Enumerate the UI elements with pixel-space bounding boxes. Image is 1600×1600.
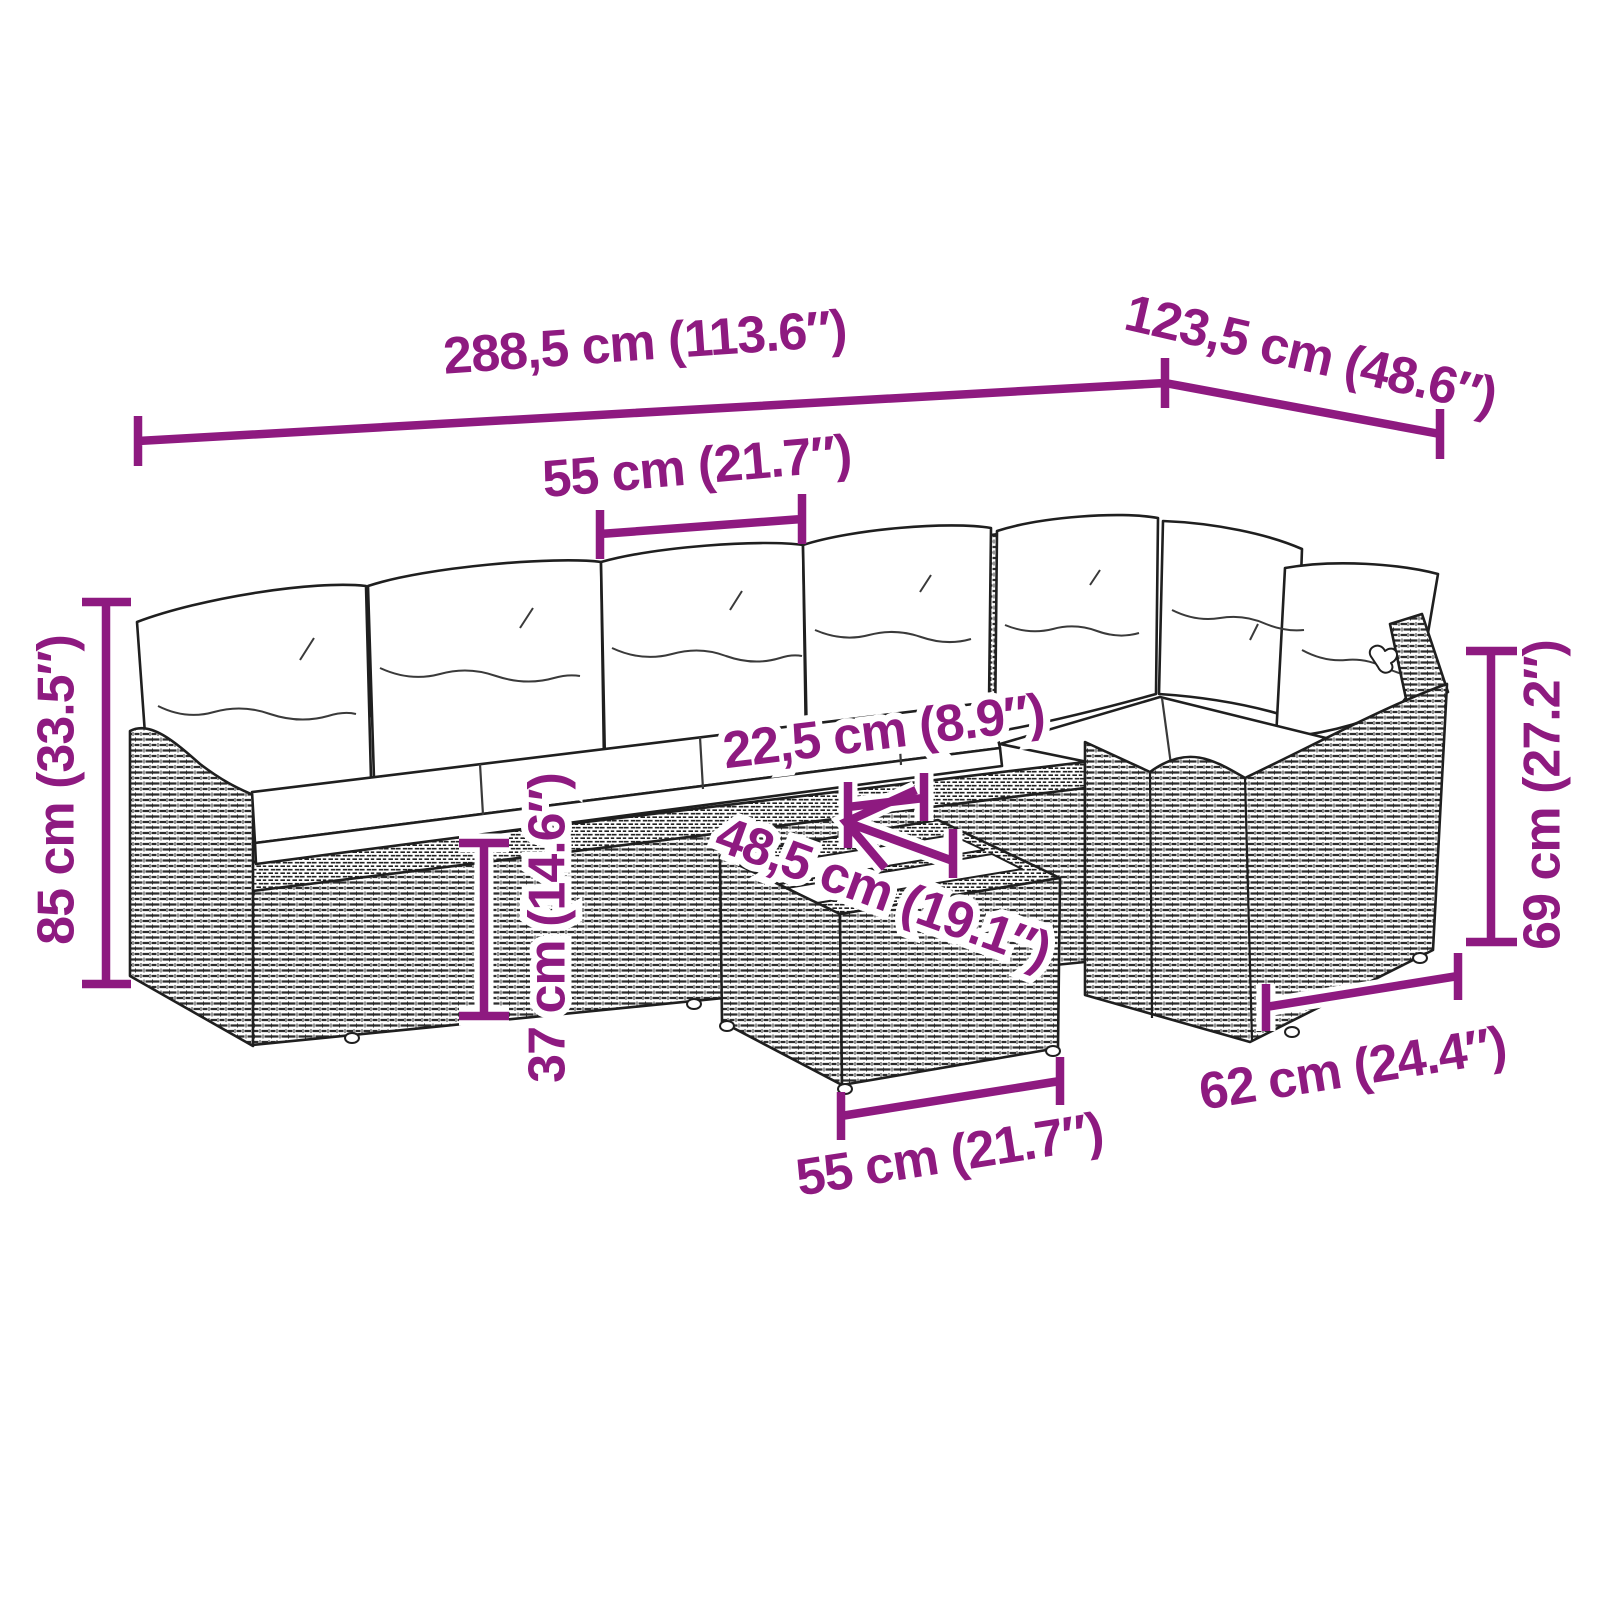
back-pillow (368, 560, 604, 779)
sofa-illustration (130, 515, 1448, 1094)
foot (1285, 1027, 1299, 1037)
label-overall-width: 288,5 cm (113.6″) (441, 300, 848, 386)
dimension-diagram: 288,5 cm (113.6″) 123,5 cm (48.6″) 55 cm… (0, 0, 1600, 1600)
label-overall-depth: 123,5 cm (48.6″) (1120, 284, 1502, 426)
dimension-line-overall-height (82, 602, 131, 984)
label-overall-height: 85 cm (33.5″) (28, 635, 86, 945)
label-armrest-height: 69 cm (27.2″) (1514, 640, 1572, 950)
dimension-line-armrest-height (1466, 651, 1517, 942)
foot (687, 999, 701, 1009)
label-seat-width: 55 cm (21.7″) (540, 424, 854, 509)
foot (1046, 1046, 1060, 1056)
label-seat-height: 37 cm (14.6″) (519, 773, 577, 1083)
foot (345, 1033, 359, 1043)
diagram-canvas: 288,5 cm (113.6″) 123,5 cm (48.6″) 55 cm… (0, 0, 1600, 1600)
foot (1413, 953, 1427, 963)
foot (720, 1021, 734, 1031)
